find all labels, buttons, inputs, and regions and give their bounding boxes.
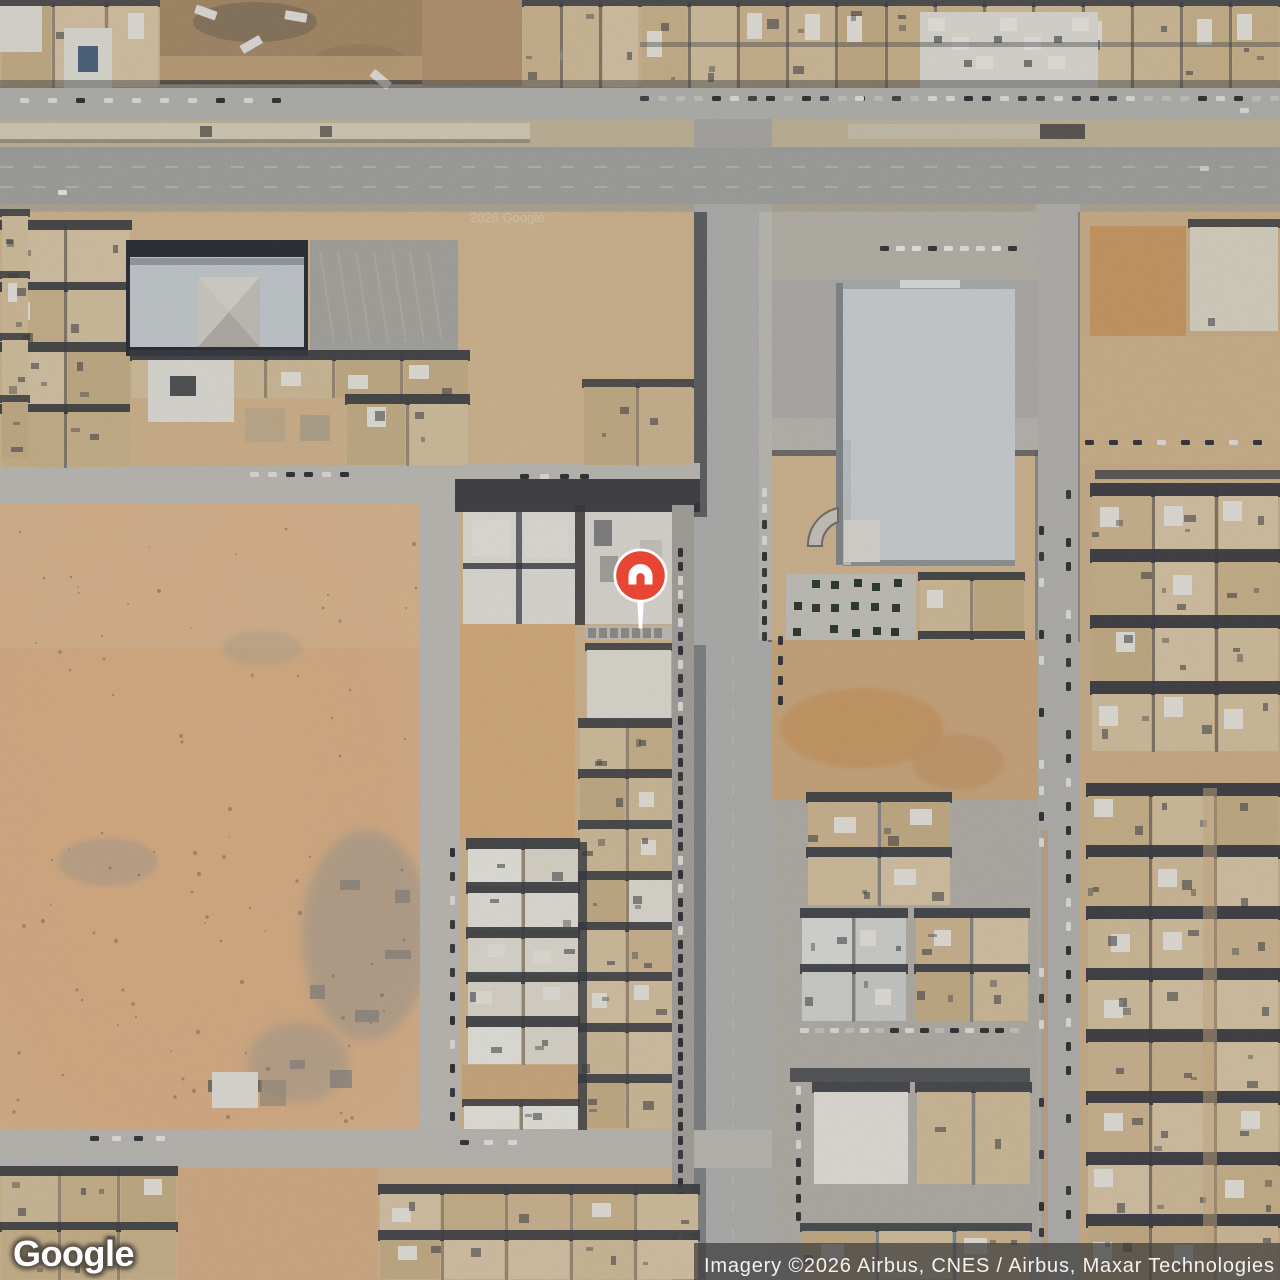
svg-text:2026 Google: 2026 Google	[470, 210, 544, 225]
svg-text:Imagery ©2026 Airbus, CNES / A: Imagery ©2026 Airbus, CNES / Airbus, Max…	[704, 1255, 1274, 1277]
svg-text:Google: Google	[13, 1233, 134, 1274]
